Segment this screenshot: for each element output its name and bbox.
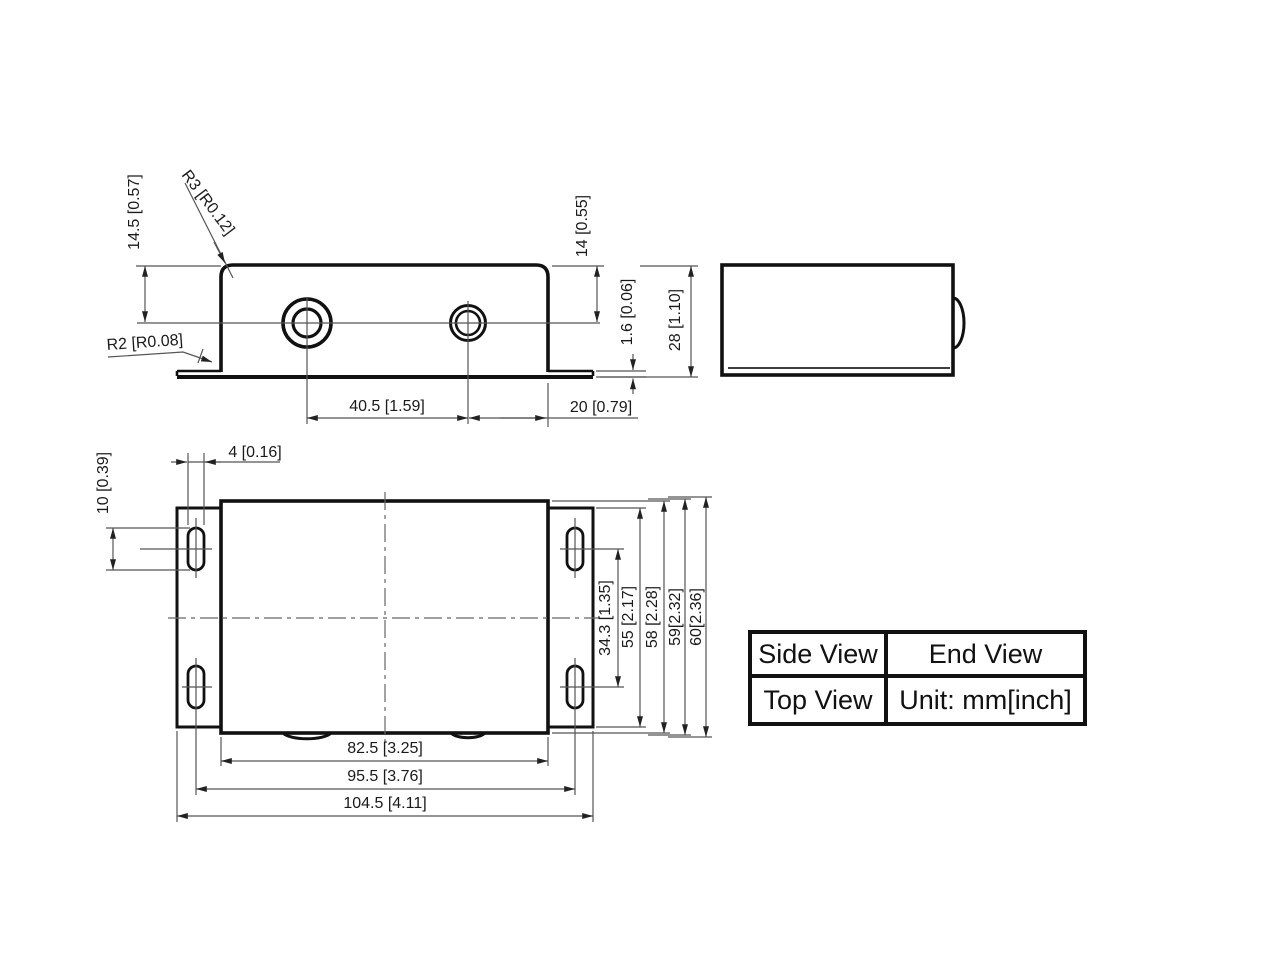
dim-side-hole-spacing: 40.5 [1.59] (307, 398, 468, 418)
dim-side-top-to-hole: 14 [0.55] (552, 195, 604, 322)
dim-label: 14.5 [0.57] (126, 174, 143, 250)
dim-label: R2 [R0.08] (106, 332, 183, 354)
dim-label: 104.5 [4.11] (343, 795, 426, 812)
dim-label: 60[2.36] (688, 588, 705, 646)
technical-drawing-page: 14.5 [0.57] R3 [R0.12] R2 [R0.08] 14 [0.… (0, 0, 1280, 960)
dim-label: 1.6 [0.06] (619, 279, 636, 346)
dim-label: 14 [0.55] (574, 195, 591, 257)
dim-label: 4 [0.16] (228, 444, 281, 461)
dim-label: 58 [2.28] (644, 586, 661, 648)
dim-label: 40.5 [1.59] (349, 398, 425, 415)
dim-label: 10 [0.39] (95, 452, 112, 514)
dim-label: 82.5 [3.25] (347, 740, 423, 757)
dim-label: 20 [0.79] (570, 399, 632, 416)
dim-side-hole-to-edge: 20 [0.79] (469, 399, 638, 418)
legend-cell-end-view: End View (888, 634, 1083, 678)
top-view: 4 [0.16] 10 [0.39] 34.3 [1.35] 55 [2.17]… (95, 444, 712, 822)
end-view (722, 265, 964, 375)
legend-cell-unit: Unit: mm[inch] (888, 678, 1083, 722)
dim-top-slot-width: 4 [0.16] (171, 444, 282, 525)
dim-side-corner-radius: R3 [R0.12] (178, 167, 238, 278)
dim-label: 55 [2.17] (620, 586, 637, 648)
legend-cell-top-view: Top View (752, 678, 888, 722)
dim-top-slot-col-spacing: 95.5 [3.76] (196, 768, 575, 789)
dim-top-slot-row-spacing: 34.3 [1.35] (597, 549, 618, 687)
dim-side-bend-radius: R2 [R0.08] (106, 332, 212, 363)
legend-table: Side View End View Top View Unit: mm[inc… (748, 630, 1087, 726)
dim-label: 28 [1.10] (667, 289, 684, 351)
dim-label: 59[2.32] (667, 588, 684, 646)
side-view: 14.5 [0.57] R3 [R0.12] R2 [R0.08] 14 [0.… (106, 167, 698, 427)
end-view-outline (722, 265, 953, 375)
dim-label: 95.5 [3.76] (347, 768, 423, 785)
legend-cell-side-view: Side View (752, 634, 888, 678)
drawing-canvas: 14.5 [0.57] R3 [R0.12] R2 [R0.08] 14 [0.… (0, 0, 1280, 960)
side-view-outline (177, 265, 593, 377)
dim-top-body-length: 82.5 [3.25] (221, 737, 548, 766)
dim-side-overall-height: 28 [1.10] (600, 266, 698, 377)
dim-label: 34.3 [1.35] (597, 580, 614, 656)
